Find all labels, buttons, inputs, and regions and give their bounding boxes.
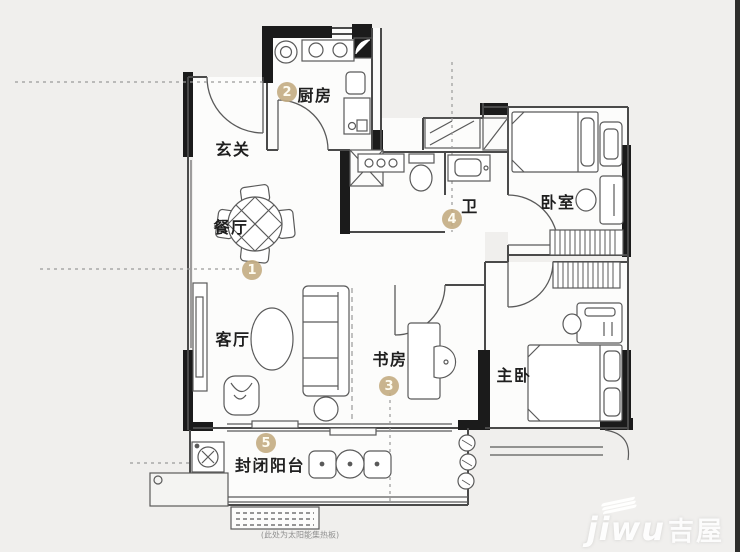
watermark-cjk-text: 吉屋 bbox=[668, 511, 724, 548]
room-label-entrance: 玄关 bbox=[215, 136, 250, 160]
solar-panel-footnote: (此处为太阳能集热板) bbox=[261, 530, 339, 541]
room-label-dining: 餐厅 bbox=[213, 214, 248, 238]
floorplan-drawing bbox=[0, 0, 740, 552]
room-label-master-bedroom: 主卧 bbox=[496, 362, 531, 386]
floorplan-image: 玄关 厨房 餐厅 客厅 书房 卫 卧室 主卧 封闭阳台 1 2 3 4 5 (此… bbox=[0, 0, 740, 552]
room-label-bathroom: 卫 bbox=[461, 193, 479, 217]
marker-3-study: 3 bbox=[379, 376, 399, 396]
watermark: jiwu 吉屋 bbox=[587, 510, 724, 548]
room-label-study: 书房 bbox=[372, 346, 407, 370]
photo-edge-strip bbox=[735, 0, 740, 552]
room-label-balcony: 封闭阳台 bbox=[235, 452, 305, 476]
marker-4-bathroom: 4 bbox=[442, 209, 462, 229]
marker-5-balcony: 5 bbox=[256, 433, 276, 453]
room-label-living: 客厅 bbox=[215, 326, 250, 350]
room-label-bedroom: 卧室 bbox=[540, 189, 575, 213]
marker-1-dining: 1 bbox=[242, 260, 262, 280]
marker-2-kitchen: 2 bbox=[277, 82, 297, 102]
bay-window-plant bbox=[458, 435, 476, 489]
room-label-kitchen: 厨房 bbox=[297, 82, 332, 106]
watermark-latin-text: jiwu bbox=[587, 510, 665, 548]
